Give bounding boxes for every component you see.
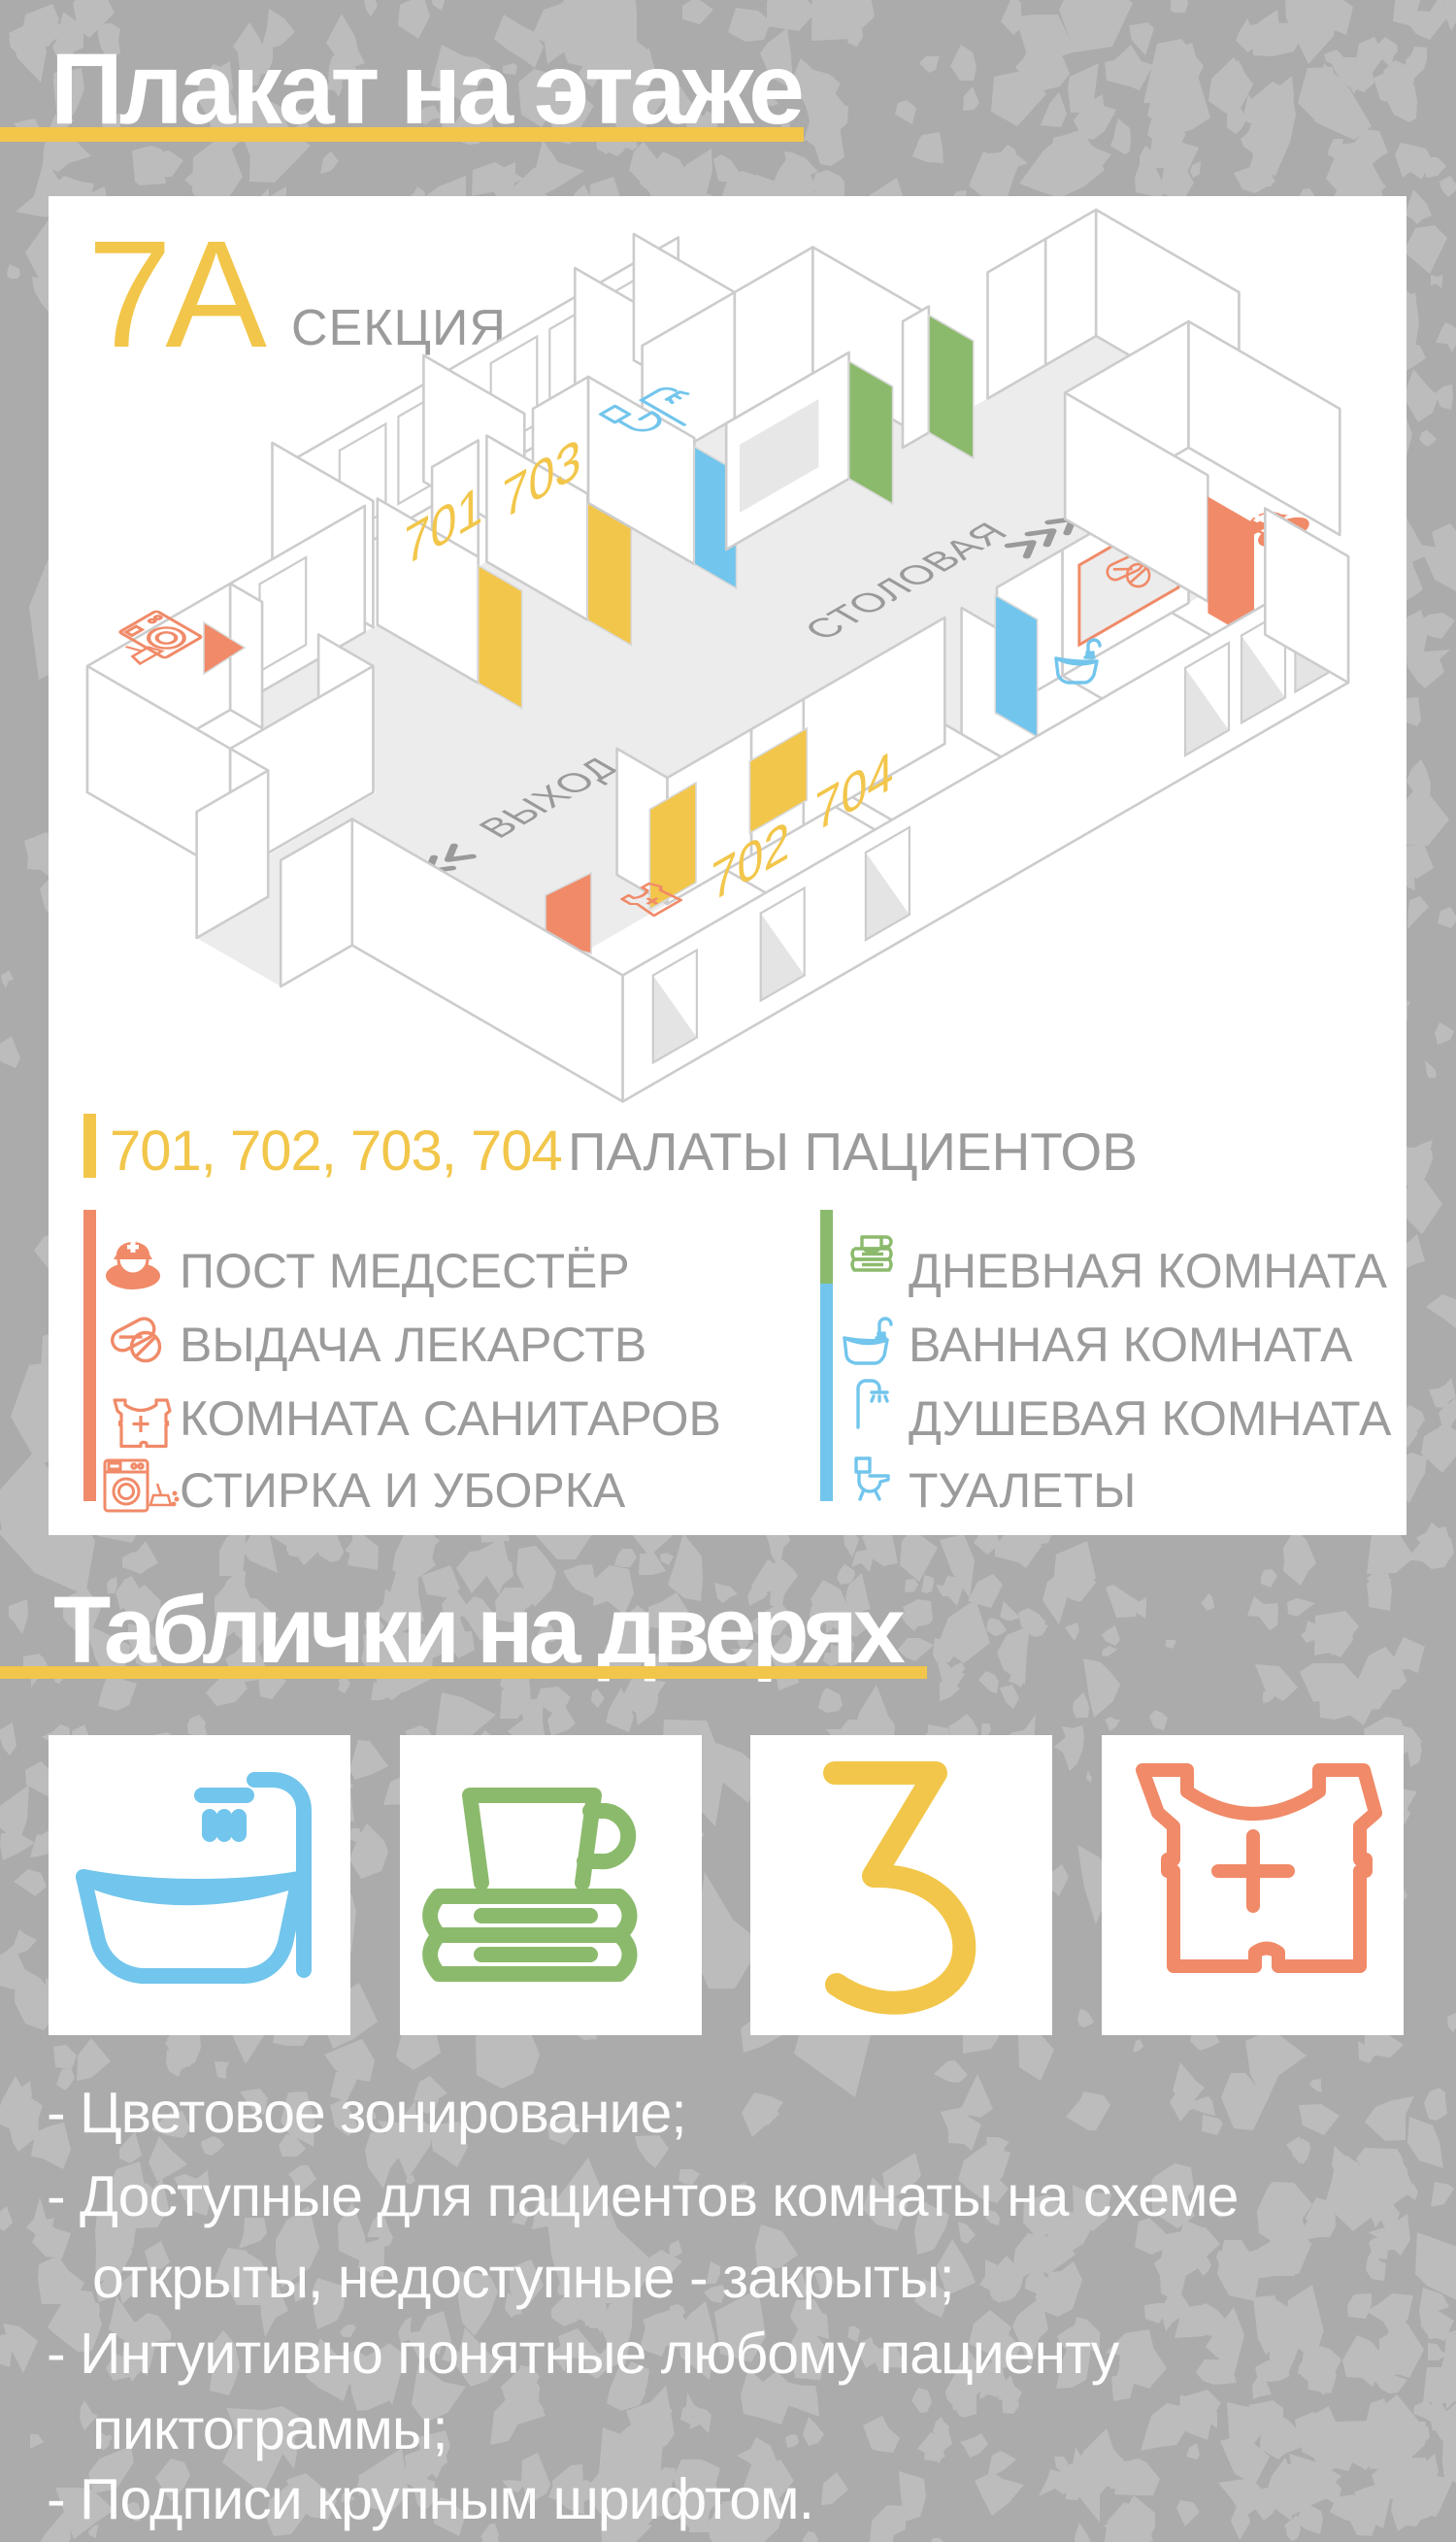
svg-text:ДНЕВНАЯ КОМНАТА: ДНЕВНАЯ КОМНАТА [909,1244,1388,1298]
svg-text:- Цветовое зонирование;: - Цветовое зонирование; [47,2081,686,2145]
svg-text:701, 702, 703, 704: 701, 702, 703, 704 [110,1120,562,1183]
svg-text:КОМНАТА САНИТАРОВ: КОМНАТА САНИТАРОВ [180,1391,721,1446]
svg-text:пиктограммы;: пиктограммы; [92,2397,447,2461]
svg-text:ПОСТ МЕДСЕСТЁР: ПОСТ МЕДСЕСТЁР [180,1244,630,1298]
svg-text:7А: 7А [87,210,267,380]
svg-text:ВЫДАЧА ЛЕКАРСТВ: ВЫДАЧА ЛЕКАРСТВ [180,1318,646,1372]
svg-text:открыты, недоступные - закрыты: открыты, недоступные - закрыты; [92,2246,954,2310]
svg-text:СЕКЦИЯ: СЕКЦИЯ [291,300,507,356]
svg-text:- Доступные для пациентов комн: - Доступные для пациентов комнаты на схе… [47,2164,1238,2228]
svg-text:- Подписи крупным шрифтом.: - Подписи крупным шрифтом. [47,2467,813,2531]
svg-text:ТУАЛЕТЫ: ТУАЛЕТЫ [909,1463,1136,1518]
svg-text:ВАННАЯ КОМНАТА: ВАННАЯ КОМНАТА [909,1318,1353,1372]
svg-text:ПАЛАТЫ ПАЦИЕНТОВ: ПАЛАТЫ ПАЦИЕНТОВ [568,1121,1138,1182]
svg-text:СТИРКА И УБОРКА: СТИРКА И УБОРКА [180,1463,626,1518]
svg-text:ДУШЕВАЯ КОМНАТА: ДУШЕВАЯ КОМНАТА [909,1391,1392,1446]
svg-text:- Интуитивно понятные любому п: - Интуитивно понятные любому пациенту [47,2322,1120,2386]
